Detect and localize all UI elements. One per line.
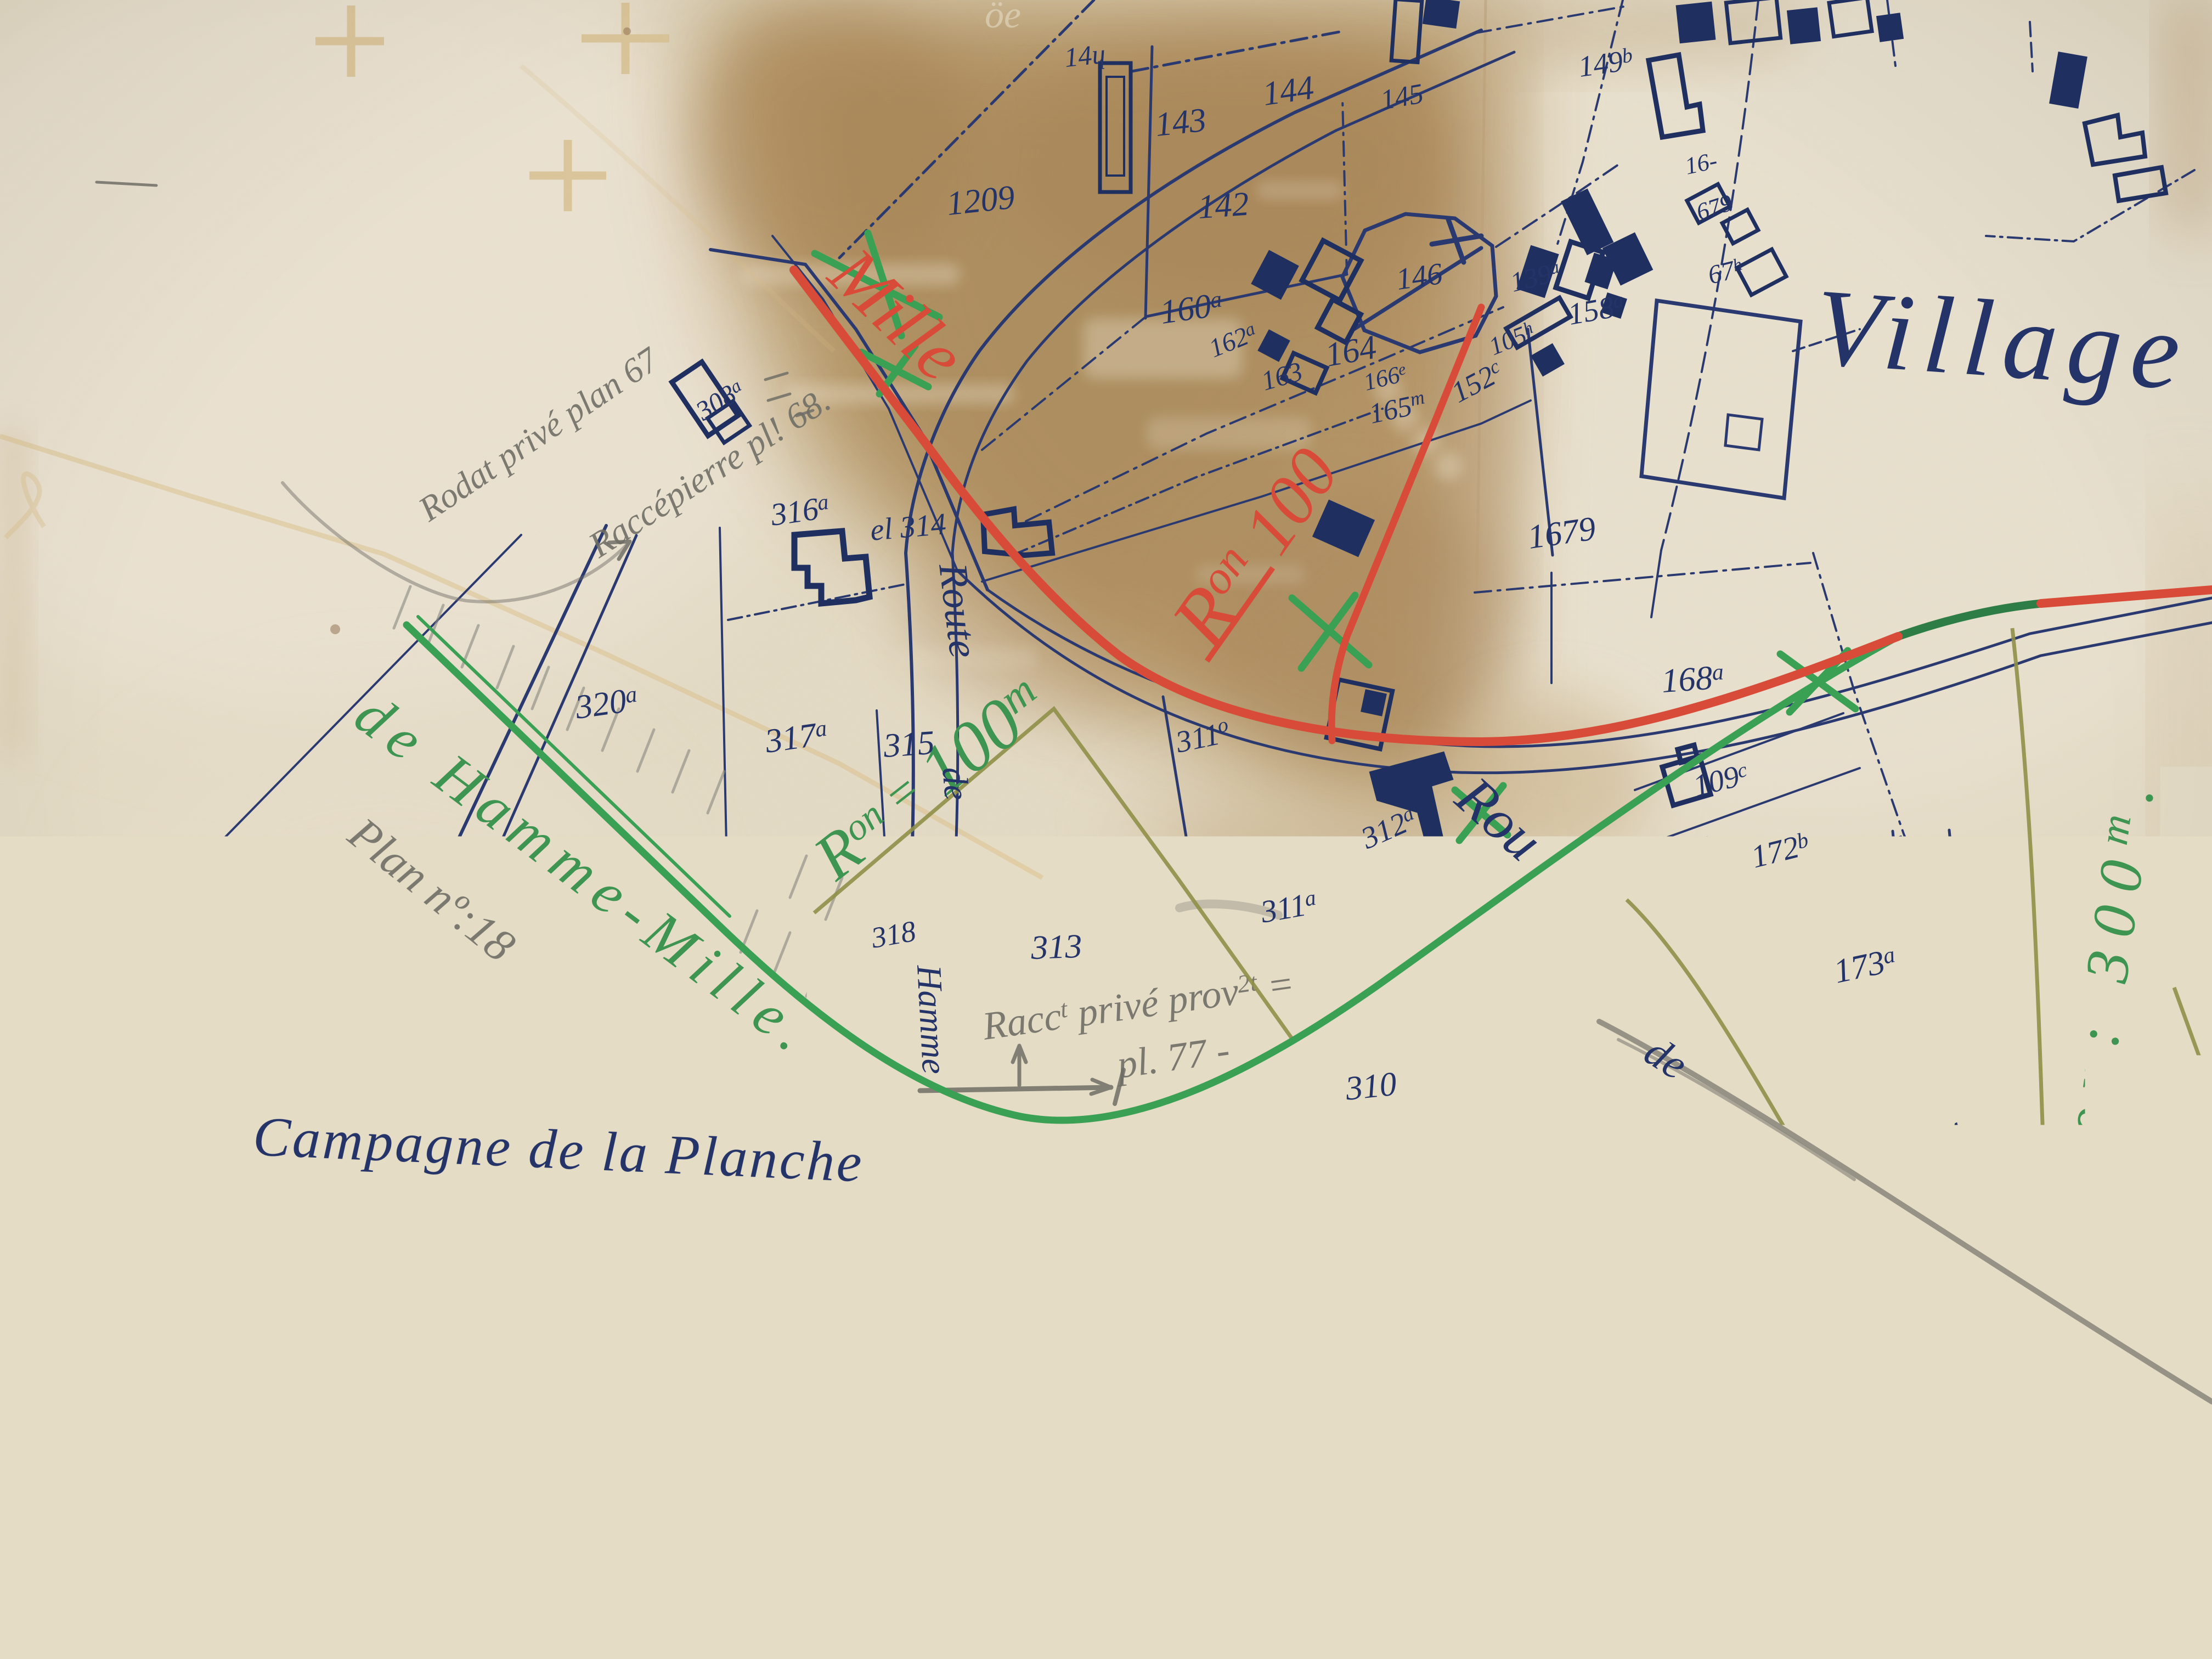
svg-text:321: 321 bbox=[131, 943, 178, 977]
svg-text:14ɥ: 14ɥ bbox=[1063, 38, 1107, 73]
svg-text:de: de bbox=[935, 765, 977, 802]
svg-text:143: 143 bbox=[1153, 101, 1208, 144]
svg-text:Hamme: Hamme bbox=[910, 963, 954, 1075]
svg-text:310: 310 bbox=[1343, 1065, 1398, 1108]
svg-text:el 314: el 314 bbox=[869, 507, 947, 548]
svg-text:142: 142 bbox=[1197, 185, 1250, 226]
svg-text:315: 315 bbox=[882, 724, 936, 765]
svg-text:146: 146 bbox=[1394, 257, 1444, 297]
svg-text:144: 144 bbox=[1260, 69, 1316, 113]
svg-text:313: 313 bbox=[1030, 928, 1082, 967]
svg-text:1209: 1209 bbox=[945, 178, 1016, 223]
